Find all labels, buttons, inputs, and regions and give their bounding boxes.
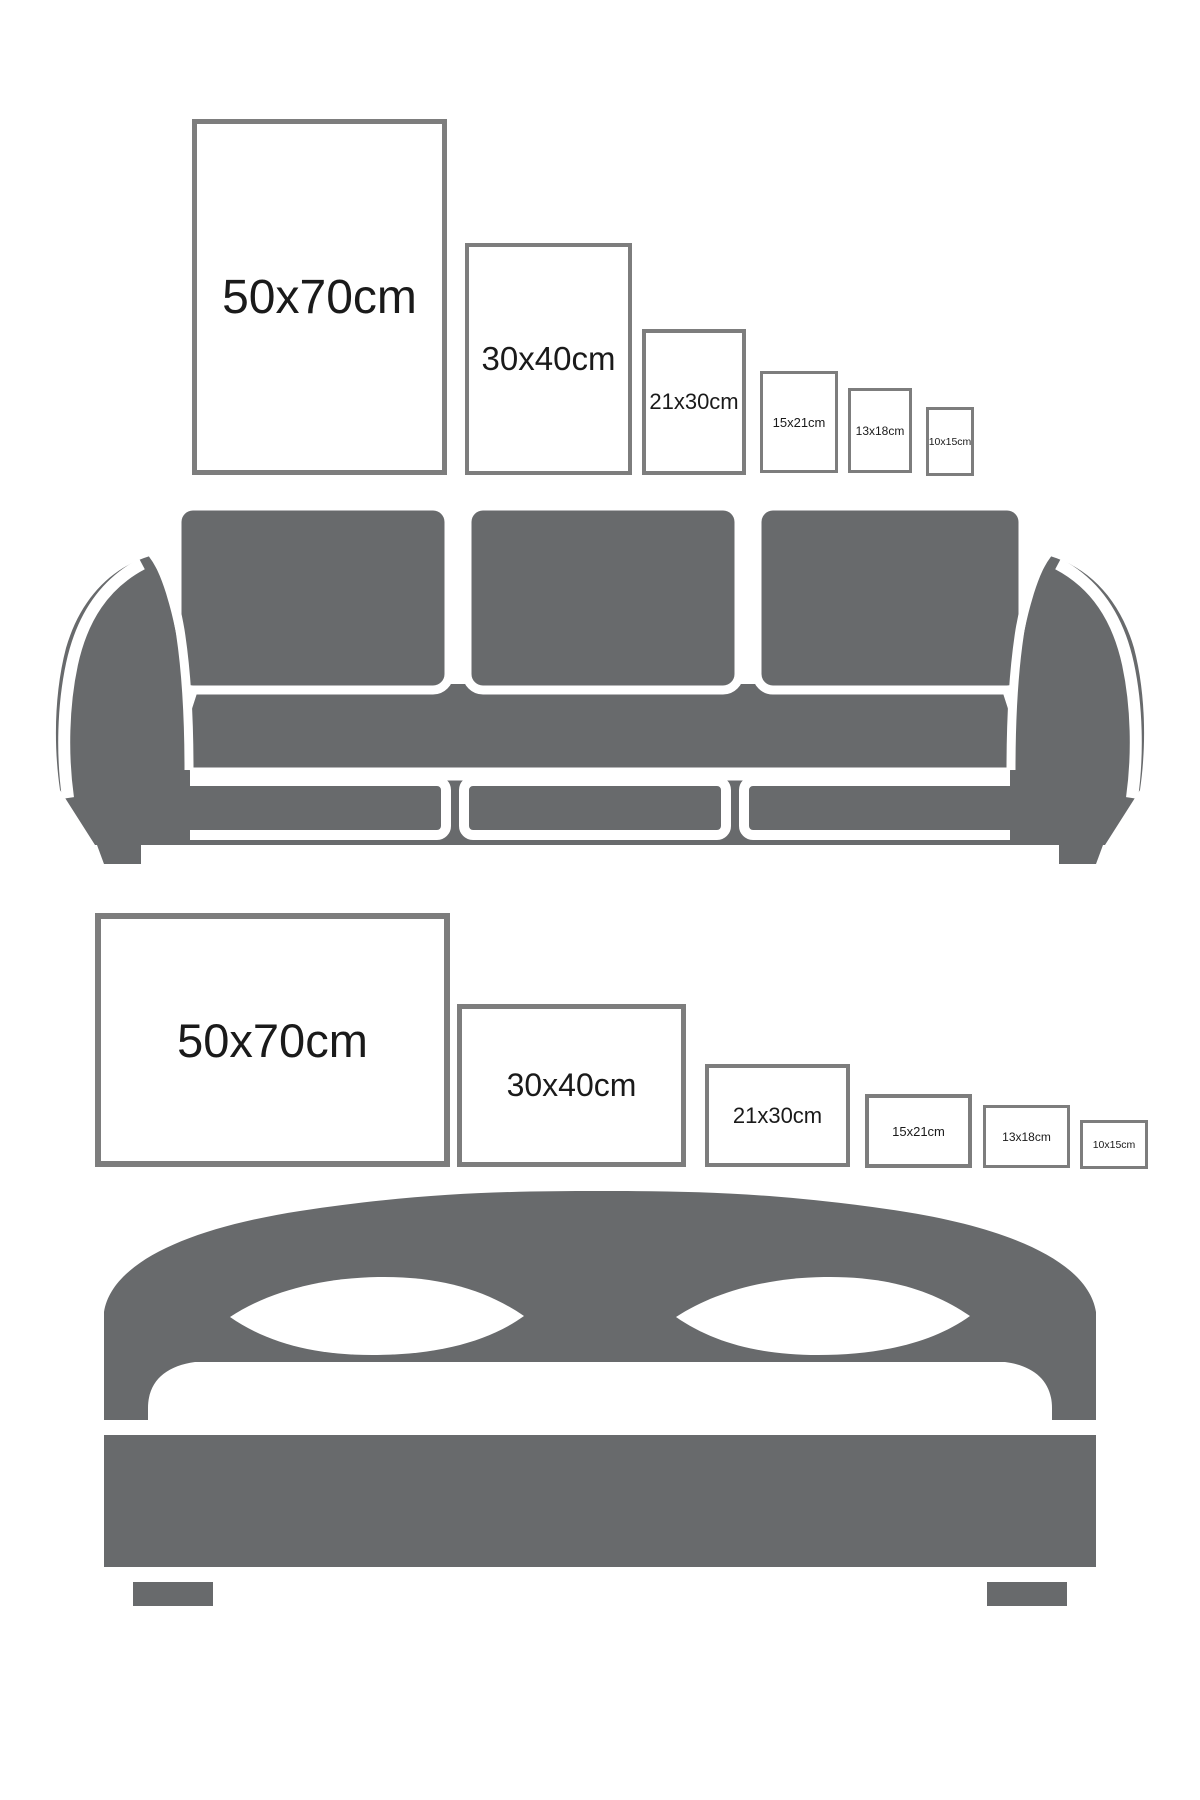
frame-portrait-30x40: 30x40cm xyxy=(465,243,632,475)
frame-landscape-15x21: 15x21cm xyxy=(865,1094,972,1168)
frame-landscape-21x30: 21x30cm xyxy=(705,1064,850,1167)
frame-size-label: 15x21cm xyxy=(773,415,826,430)
frame-size-label: 13x18cm xyxy=(1002,1130,1051,1144)
bed-icon xyxy=(104,1191,1096,1606)
frame-size-label: 10x15cm xyxy=(1093,1139,1136,1151)
frame-size-label: 10x15cm xyxy=(929,436,972,448)
frame-size-label: 50x70cm xyxy=(222,270,417,325)
frame-portrait-21x30: 21x30cm xyxy=(642,329,746,475)
frame-landscape-13x18: 13x18cm xyxy=(983,1105,1070,1168)
frame-size-label: 15x21cm xyxy=(892,1124,945,1139)
frame-size-label: 30x40cm xyxy=(507,1067,637,1104)
frame-landscape-50x70: 50x70cm xyxy=(95,913,450,1167)
frame-size-label: 30x40cm xyxy=(482,340,616,378)
size-comparison-infographic: 50x70cm 30x40cm 21x30cm 15x21cm 13x18cm … xyxy=(0,0,1200,1800)
sofa-icon xyxy=(56,506,1144,864)
frame-portrait-10x15: 10x15cm xyxy=(926,407,974,476)
frame-size-label: 21x30cm xyxy=(733,1103,822,1129)
frame-portrait-13x18: 13x18cm xyxy=(848,388,912,473)
frame-landscape-10x15: 10x15cm xyxy=(1080,1120,1148,1169)
frame-size-label: 50x70cm xyxy=(177,1013,368,1068)
frame-portrait-15x21: 15x21cm xyxy=(760,371,838,473)
frame-size-label: 21x30cm xyxy=(649,389,738,415)
frame-size-label: 13x18cm xyxy=(856,424,905,438)
frame-landscape-30x40: 30x40cm xyxy=(457,1004,686,1167)
frame-portrait-50x70: 50x70cm xyxy=(192,119,447,475)
